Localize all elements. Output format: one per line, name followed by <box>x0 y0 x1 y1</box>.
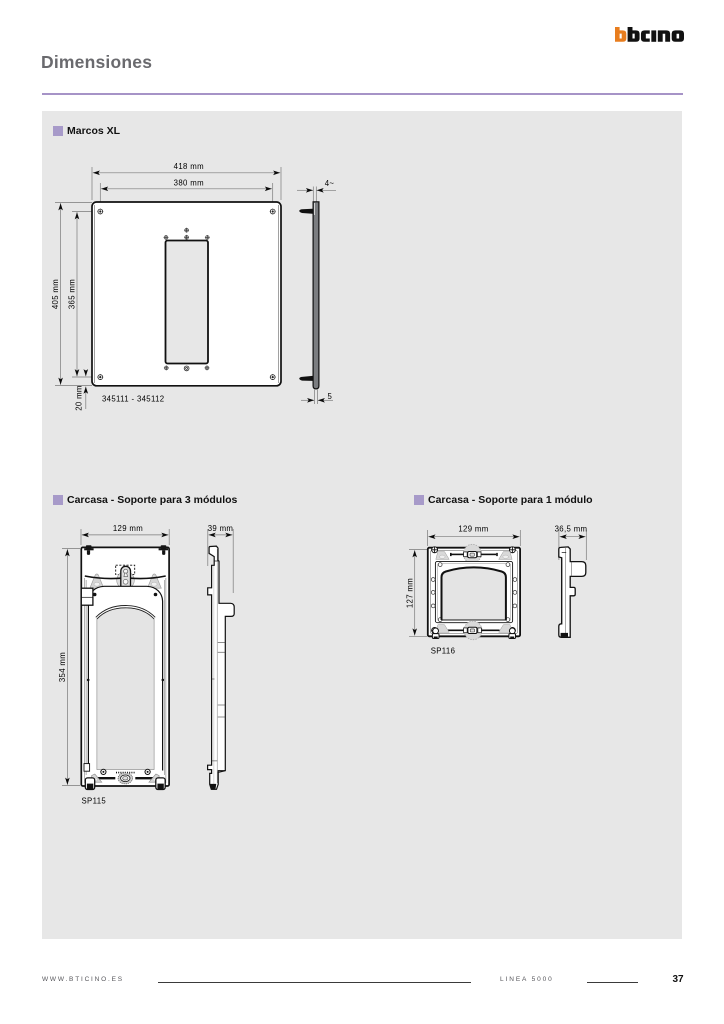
svg-text:365 mm: 365 mm <box>68 279 77 309</box>
svg-text:129 mm: 129 mm <box>113 524 143 533</box>
svg-text:129 mm: 129 mm <box>458 525 488 534</box>
svg-text:4~: 4~ <box>325 179 335 188</box>
svg-text:354 mm: 354 mm <box>58 652 67 682</box>
svg-text:418 mm: 418 mm <box>174 162 204 171</box>
svg-text:345111 - 345112: 345111 - 345112 <box>102 395 164 404</box>
svg-text:39 mm: 39 mm <box>208 524 234 533</box>
svg-text:SP115: SP115 <box>82 797 107 806</box>
svg-text:5: 5 <box>328 392 333 401</box>
svg-text:36,5 mm: 36,5 mm <box>555 525 588 534</box>
svg-text:380 mm: 380 mm <box>174 178 204 187</box>
svg-text:20 mm: 20 mm <box>75 385 84 411</box>
svg-text:127 mm: 127 mm <box>405 578 414 608</box>
svg-text:SP116: SP116 <box>431 647 456 656</box>
svg-text:405 mm: 405 mm <box>51 279 60 309</box>
